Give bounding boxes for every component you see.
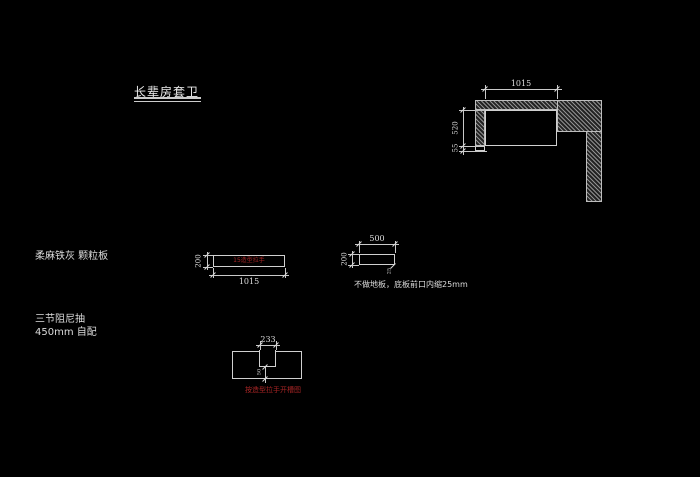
dim-text-height: 200: [196, 254, 203, 267]
dim-text-width: 500: [369, 235, 384, 243]
dim-text-width: 1015: [511, 80, 531, 88]
material-label: 柔麻铁灰 颗粒板: [35, 251, 108, 263]
drawer-label-line2: 450mm 自配: [35, 327, 97, 339]
panel-red-note: 15造型拉手: [213, 258, 285, 264]
drawer-red-note: 按造型拉手开槽图: [244, 387, 302, 394]
dim-text-width: 1015: [239, 278, 259, 286]
wall-hatch-left: [475, 110, 485, 146]
dim-text-inset: 25: [388, 268, 393, 274]
title-underline-top: [134, 97, 201, 99]
dim-text-height: 520: [453, 121, 460, 134]
cad-drawing-canvas: 长辈房套卫 1015 520 55 柔麻铁灰 颗粒板 15造型拉手: [0, 0, 700, 477]
board-note: 不做地板，底板前口内缩25mm: [354, 280, 468, 290]
dim-text-notch-width: 233: [260, 336, 275, 344]
board-outline: [359, 254, 395, 265]
wall-hatch-right-block: [557, 100, 602, 132]
dim-line: [209, 275, 289, 276]
dim-text-notch-depth: 50: [258, 369, 263, 375]
dim-text-height: 200: [342, 252, 349, 265]
title-underline-bottom: [134, 101, 201, 102]
dim-line: [481, 89, 562, 90]
cabinet-outline: [485, 110, 557, 146]
wall-hatch-right-column: [586, 131, 602, 202]
drawer-label-line1: 三节阻尼抽: [35, 314, 85, 326]
dim-line: [265, 367, 266, 383]
dim-text-kick: 55: [453, 144, 460, 153]
